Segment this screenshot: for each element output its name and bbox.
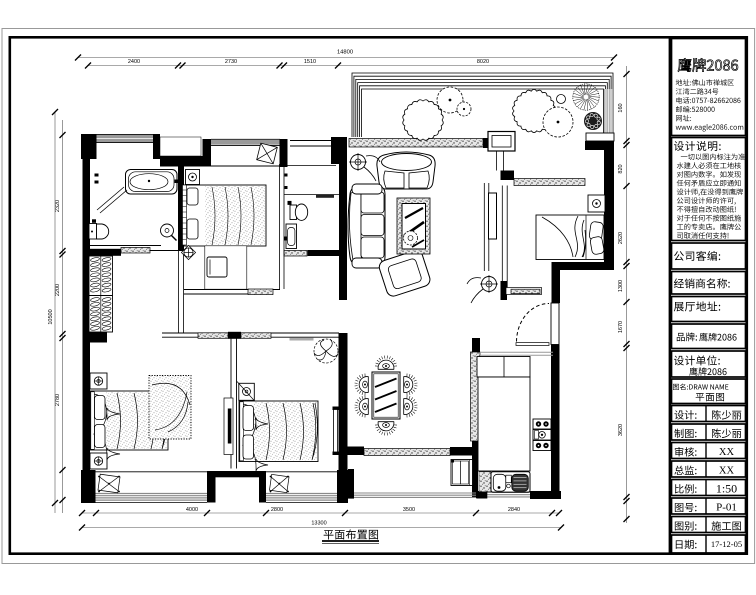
svg-text:2620: 2620: [618, 232, 624, 244]
svg-text:2840: 2840: [508, 507, 520, 513]
svg-text:P-01: P-01: [716, 502, 737, 514]
svg-text:1300: 1300: [618, 280, 624, 292]
svg-text:14800: 14800: [337, 50, 353, 56]
svg-text:13300: 13300: [311, 521, 326, 527]
svg-text:1510: 1510: [304, 59, 316, 65]
svg-text:XX: XX: [719, 466, 735, 477]
svg-text:17-12-05: 17-12-05: [711, 539, 742, 549]
svg-text:160: 160: [618, 103, 624, 112]
svg-text:XX: XX: [719, 447, 735, 458]
svg-text:1:50: 1:50: [716, 482, 737, 496]
svg-text:2320: 2320: [55, 200, 61, 212]
svg-text:2780: 2780: [55, 394, 61, 406]
svg-text:2730: 2730: [225, 59, 237, 65]
svg-text:2200: 2200: [55, 284, 61, 296]
svg-text:2800: 2800: [271, 507, 283, 513]
svg-text:4000: 4000: [186, 507, 198, 513]
svg-text:10500: 10500: [48, 309, 54, 324]
svg-text:1670: 1670: [618, 321, 624, 333]
svg-text:2400: 2400: [128, 59, 140, 65]
svg-text:820: 820: [618, 164, 624, 173]
svg-text:8020: 8020: [477, 59, 489, 65]
svg-text:3500: 3500: [403, 507, 415, 513]
svg-text:3620: 3620: [618, 424, 624, 436]
